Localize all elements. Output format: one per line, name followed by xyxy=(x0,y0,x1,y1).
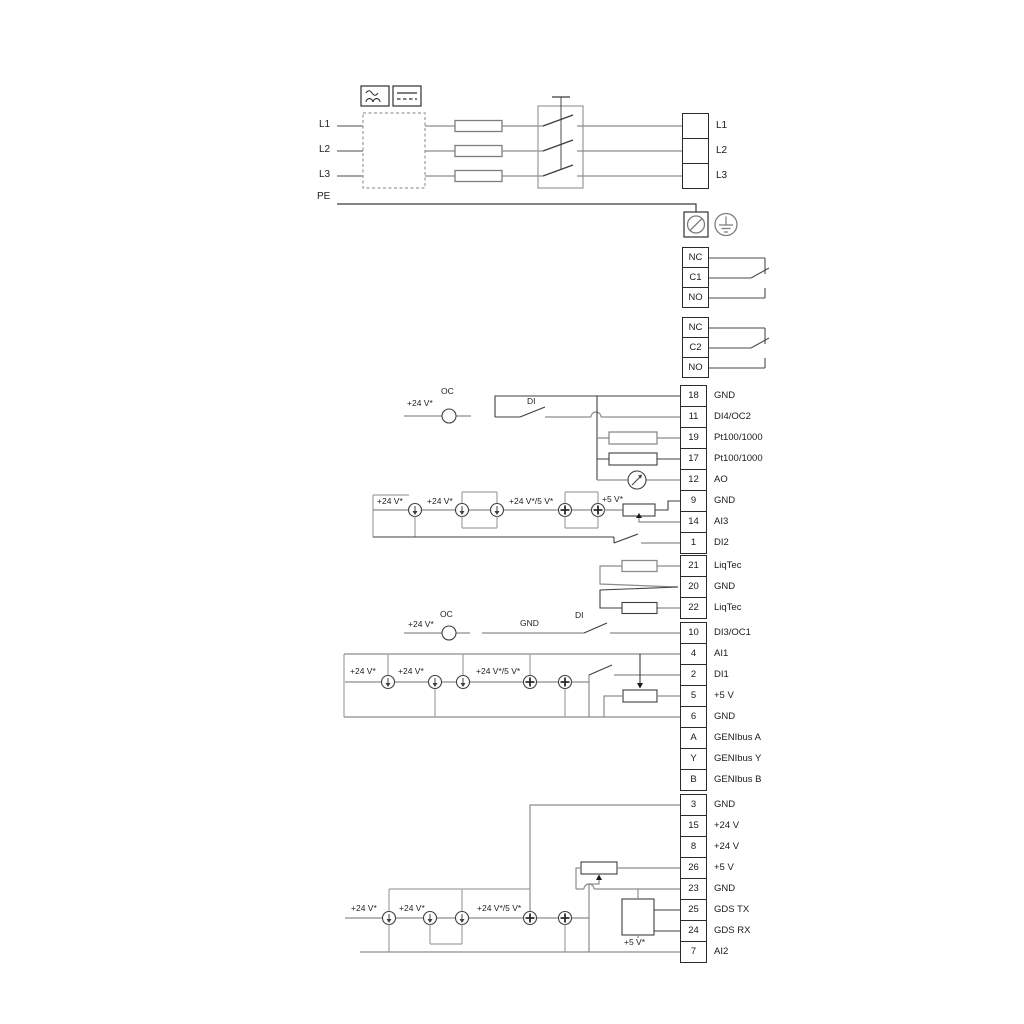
relay-wires xyxy=(709,258,769,368)
ai3-sensor-row xyxy=(373,492,605,537)
pt100-resistor-19 xyxy=(609,432,657,444)
liqtec-wires xyxy=(600,561,680,614)
oc-circle-di4 xyxy=(442,409,456,423)
v24-label: +24 V* xyxy=(408,619,434,629)
io1-wires xyxy=(373,396,680,543)
v24-label: +24 V* xyxy=(377,496,403,506)
wiring-diagram: L1 L2 L3 PE +24 V* OC DI +24 V* +24 V* +… xyxy=(0,0,1024,1024)
v24-label: +24 V* xyxy=(351,903,377,913)
liqtec-resistor-21 xyxy=(622,561,657,572)
v24-label: +24 V* xyxy=(350,666,376,676)
power-in-label-l3: L3 xyxy=(319,169,330,180)
earth-icon xyxy=(715,214,737,236)
liqtec-resistor-22 xyxy=(622,603,657,614)
power-in-label-l1: L1 xyxy=(319,119,330,130)
di-label: DI xyxy=(575,610,584,620)
wiring-svg xyxy=(0,0,1024,1024)
pt100-resistor-17 xyxy=(609,453,657,465)
di-label: DI xyxy=(527,396,536,406)
converter-ac-icon xyxy=(361,86,389,106)
power-in-label-pe: PE xyxy=(317,191,330,202)
ai1-wires xyxy=(344,654,680,717)
oc-label: OC xyxy=(441,386,454,396)
pe-screw-icon xyxy=(684,212,708,237)
power-in-label-l2: L2 xyxy=(319,144,330,155)
oc-label: OC xyxy=(440,609,453,619)
power-section xyxy=(337,86,737,237)
oc-circle-di3 xyxy=(442,626,456,640)
v24-label: +24 V* xyxy=(399,903,425,913)
v24-5v-label: +24 V*/5 V* xyxy=(509,496,553,506)
gnd-label: GND xyxy=(520,618,539,628)
main-switch xyxy=(538,97,583,188)
fuse-l2 xyxy=(455,146,502,157)
v5-label: +5 V* xyxy=(602,494,623,504)
v24-5v-label: +24 V*/5 V* xyxy=(476,666,520,676)
ao-meter-icon xyxy=(628,471,646,489)
gds-sensor-box xyxy=(622,889,680,938)
v24-5v-label: +24 V*/5 V* xyxy=(477,903,521,913)
v24-label: +24 V* xyxy=(407,398,433,408)
v24-label: +24 V* xyxy=(427,496,453,506)
converter-dc-icon xyxy=(393,86,421,106)
ai2-sensor-row xyxy=(345,912,589,953)
di3-wires xyxy=(404,623,680,640)
ai1-sensor-row xyxy=(345,654,589,717)
ai3-potentiometer xyxy=(604,501,680,522)
fuse-l3 xyxy=(455,171,502,182)
v5-gds-label: +5 V* xyxy=(624,937,645,947)
v24-label: +24 V* xyxy=(398,666,424,676)
gds-wires xyxy=(345,805,680,952)
fuse-l1 xyxy=(455,121,502,132)
ai1-potentiometer xyxy=(604,654,680,717)
